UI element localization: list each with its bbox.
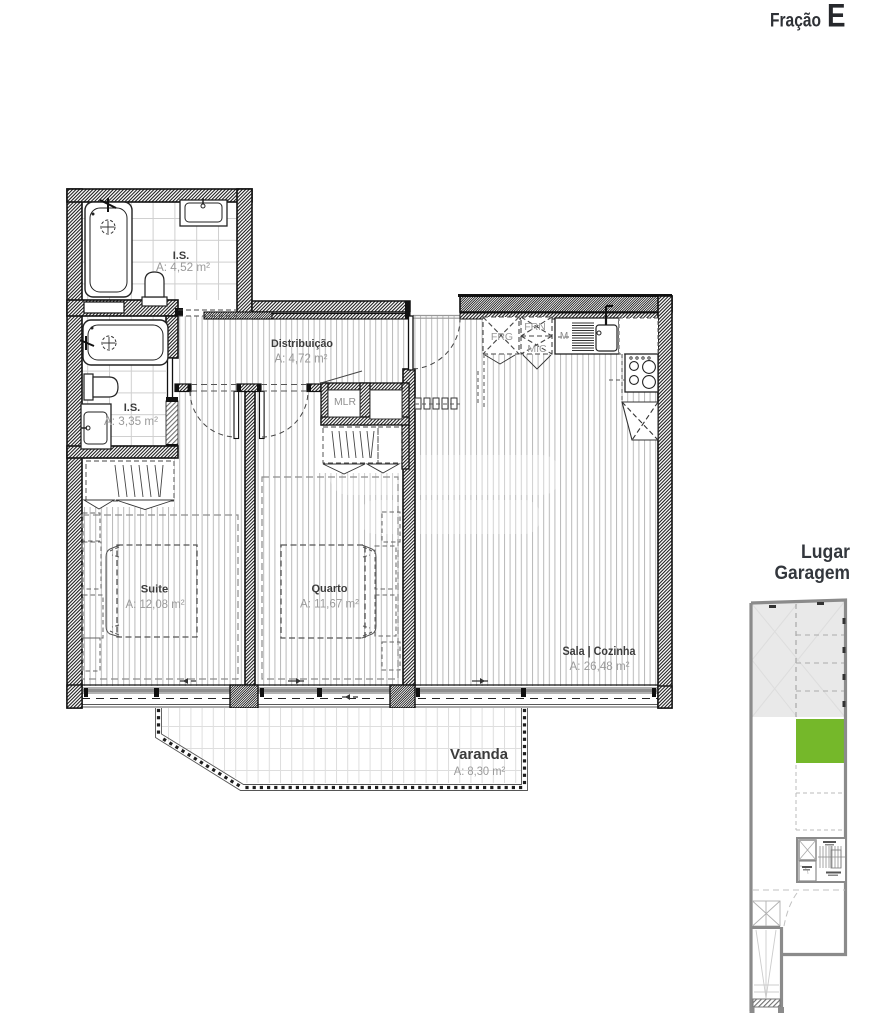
- svg-text:Lugar: Lugar: [801, 542, 851, 563]
- svg-text:A: 3,35 m²: A: 3,35 m²: [104, 414, 158, 428]
- svg-text:FRN: FRN: [524, 321, 546, 333]
- svg-text:A: 11,67 m²: A: 11,67 m²: [300, 597, 359, 611]
- svg-text:Distribuição: Distribuição: [271, 338, 333, 350]
- svg-text:FRG: FRG: [491, 331, 513, 343]
- svg-text:E: E: [827, 0, 846, 34]
- svg-text:I.S.: I.S.: [124, 402, 141, 414]
- svg-text:Quarto: Quarto: [312, 583, 348, 595]
- svg-text:MLR: MLR: [334, 397, 356, 408]
- svg-text:Garagem: Garagem: [775, 563, 851, 584]
- svg-text:A: 4,72 m²: A: 4,72 m²: [275, 352, 328, 366]
- svg-text:Fração: Fração: [770, 11, 821, 32]
- svg-text:MIC: MIC: [527, 343, 547, 355]
- svg-text:A: 12,08 m²: A: 12,08 m²: [126, 597, 185, 611]
- svg-text:A: 4,52 m²: A: 4,52 m²: [156, 260, 210, 274]
- svg-text:A: 8,30 m²: A: 8,30 m²: [454, 764, 506, 778]
- svg-text:Varanda: Varanda: [450, 747, 509, 763]
- svg-text:M: M: [560, 331, 568, 342]
- svg-text:A: 26,48 m²: A: 26,48 m²: [570, 659, 630, 673]
- svg-text:Sala | Cozinha: Sala | Cozinha: [563, 644, 636, 658]
- svg-text:Suite: Suite: [141, 584, 169, 596]
